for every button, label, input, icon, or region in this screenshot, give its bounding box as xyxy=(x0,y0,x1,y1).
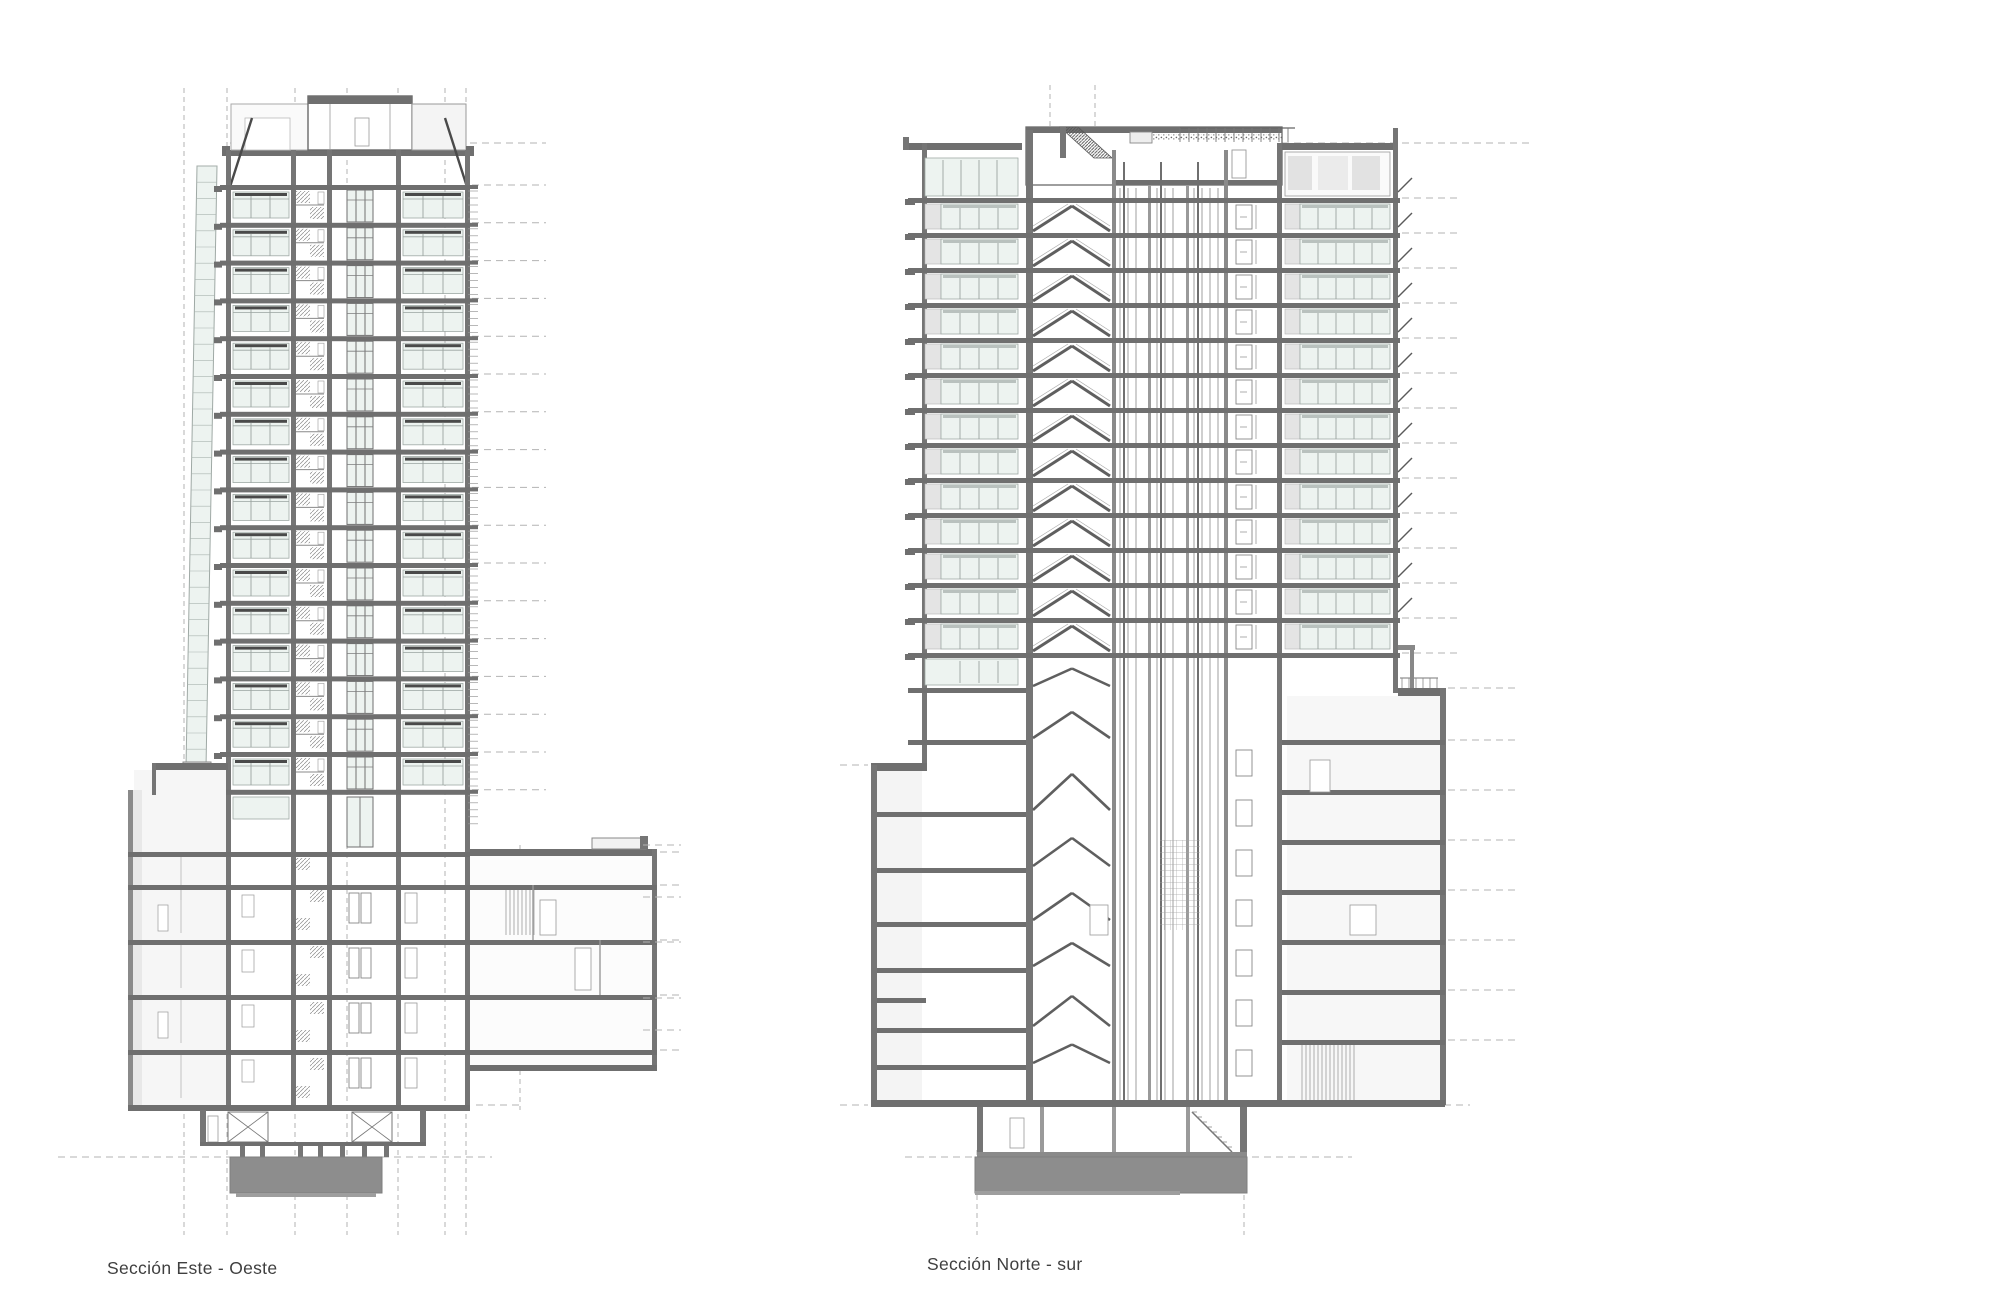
stair-flight xyxy=(1033,712,1072,738)
stair-flight xyxy=(1072,311,1110,336)
balcony-nib xyxy=(214,715,222,721)
pile-wall xyxy=(298,1146,303,1157)
stair-flight xyxy=(296,607,310,619)
davit-arm xyxy=(1398,178,1412,192)
stair-flight xyxy=(1072,416,1110,441)
fixture xyxy=(242,950,254,972)
window-door xyxy=(347,644,373,676)
window-door xyxy=(347,455,373,487)
balcony-nib xyxy=(214,224,222,230)
roof-gravel xyxy=(1136,134,1282,140)
stair-door xyxy=(318,457,324,469)
stair-tread xyxy=(1076,414,1110,436)
podium-slab xyxy=(128,885,228,890)
section-este-oeste xyxy=(58,88,684,1235)
stair-door xyxy=(318,683,324,695)
stair-flight xyxy=(296,1086,310,1098)
floor-slab xyxy=(908,583,1400,588)
canvas: Sección Este - Oeste Sección Norte - sur xyxy=(0,0,2000,1308)
stair-flight xyxy=(1072,241,1110,266)
pile-wall xyxy=(260,1146,265,1157)
stair-flight xyxy=(310,661,324,673)
podium-door xyxy=(349,1058,359,1088)
stair-flight xyxy=(296,342,310,354)
stair-flight xyxy=(310,585,324,597)
edge-nib xyxy=(468,374,478,378)
podium-slab xyxy=(1282,840,1445,845)
stair-tread xyxy=(1033,414,1068,436)
window-head xyxy=(235,193,287,196)
stair-tread xyxy=(1033,379,1068,401)
floor-slab xyxy=(220,525,470,530)
panel xyxy=(1288,156,1312,190)
facade-panel xyxy=(925,344,941,369)
window-shadow xyxy=(943,205,1016,208)
facade-panel xyxy=(1285,449,1300,474)
balcony-nib xyxy=(905,444,915,450)
stair-flight xyxy=(1072,591,1110,616)
window-shadow xyxy=(943,240,1016,243)
podium-wall xyxy=(152,763,156,795)
stair-tread xyxy=(1033,554,1068,576)
stair-flight xyxy=(310,890,324,902)
stair-door xyxy=(318,268,324,280)
roof-slab xyxy=(226,150,470,156)
window-head xyxy=(405,344,461,347)
window-head xyxy=(405,269,461,272)
davit-arm xyxy=(1398,318,1412,332)
stair-flight xyxy=(1033,669,1072,687)
stair-flight xyxy=(1072,521,1110,546)
window-head xyxy=(405,306,461,309)
stair-tread xyxy=(1076,274,1110,296)
balcony-nib xyxy=(905,304,915,310)
facade-panel xyxy=(1285,344,1300,369)
stair-door xyxy=(318,381,324,393)
davit-arm xyxy=(1398,528,1412,542)
stair-flight xyxy=(296,229,310,241)
floor-slab xyxy=(220,487,470,492)
balcony-nib xyxy=(214,753,222,759)
window-head xyxy=(405,684,461,687)
podium-slab xyxy=(908,1065,1026,1070)
podium-roof xyxy=(152,763,228,770)
podium-door xyxy=(361,1058,371,1088)
podium-facade-strip xyxy=(133,790,142,1105)
podium-slab xyxy=(908,740,1026,745)
stair-door xyxy=(318,721,324,733)
window-shadow xyxy=(1302,310,1388,313)
window-shadow xyxy=(1302,205,1388,208)
podium-interior xyxy=(1287,696,1440,1100)
stair-flight xyxy=(1072,626,1110,651)
stair-flight xyxy=(296,720,310,732)
facade-panel xyxy=(925,589,941,614)
floor-slab xyxy=(908,618,1400,623)
roof-box xyxy=(412,104,466,150)
section-label-norte-sur: Sección Norte - sur xyxy=(927,1254,1082,1275)
floor-slab xyxy=(908,198,1400,203)
stair-tread xyxy=(1076,554,1110,576)
pile-wall xyxy=(384,1146,389,1157)
floor-slab xyxy=(908,548,1400,553)
stair-flight xyxy=(1033,838,1072,866)
window-shadow xyxy=(943,380,1016,383)
podium-door xyxy=(361,893,371,923)
window-shadow xyxy=(1302,415,1388,418)
ground-slab xyxy=(128,1105,470,1111)
stair-tread xyxy=(1033,309,1068,331)
fixture xyxy=(242,1060,254,1082)
edge-nib xyxy=(468,261,478,265)
podium-door xyxy=(349,1003,359,1033)
facade-panel xyxy=(925,554,941,579)
wing-roof xyxy=(1282,143,1398,150)
balcony-nib xyxy=(214,186,222,192)
window-door xyxy=(347,568,373,600)
stair-flight xyxy=(296,493,310,505)
glass-screen xyxy=(186,166,217,768)
balcony-nib xyxy=(905,514,915,520)
edge-nib xyxy=(468,790,478,794)
parapet-nib xyxy=(903,137,909,150)
stair-flight xyxy=(310,434,324,446)
stair-door xyxy=(318,419,324,431)
stair-flight xyxy=(310,358,324,370)
foundation-ledge xyxy=(975,1191,1180,1195)
stair-flight xyxy=(1072,1045,1110,1064)
balcony-nib xyxy=(905,199,915,205)
stair-flight xyxy=(1072,943,1110,966)
section-label-este-oeste: Sección Este - Oeste xyxy=(107,1258,277,1279)
balcony-nib xyxy=(905,549,915,555)
stair-flight xyxy=(1072,276,1110,301)
window-head xyxy=(235,344,287,347)
stair-flight xyxy=(1033,591,1072,616)
window-door xyxy=(347,303,373,335)
floor-slab xyxy=(220,336,470,341)
stair-door xyxy=(318,570,324,582)
edge-nib xyxy=(468,714,478,718)
podium-slab xyxy=(908,653,1026,658)
stair-flight xyxy=(1033,626,1072,651)
panel xyxy=(1318,156,1348,190)
floor-slab xyxy=(220,601,470,606)
window-shadow xyxy=(943,345,1016,348)
stair-wall xyxy=(1026,130,1033,1105)
podium-slab xyxy=(1282,890,1445,895)
foundation xyxy=(230,1157,382,1193)
window-door xyxy=(347,530,373,562)
window-shadow xyxy=(943,555,1016,558)
floor-slab xyxy=(220,790,470,795)
podium-door xyxy=(1236,1050,1252,1076)
podium-door xyxy=(349,893,359,923)
fixture xyxy=(242,1005,254,1027)
stair-tread xyxy=(1076,624,1110,646)
stair-flight xyxy=(296,858,310,870)
window-head xyxy=(405,571,461,574)
stair-tread xyxy=(1076,484,1110,506)
stair-tread xyxy=(1076,309,1110,331)
stair-flight xyxy=(310,1002,324,1014)
podium-wall xyxy=(871,765,877,1105)
lobby-window xyxy=(233,797,289,819)
window-shadow xyxy=(1302,485,1388,488)
window-head xyxy=(235,647,287,650)
window-head xyxy=(405,760,461,763)
stair-flight xyxy=(1072,381,1110,406)
floor-slab xyxy=(220,676,470,681)
ground-slab xyxy=(871,1100,1445,1107)
annex-slab xyxy=(470,995,657,1000)
stair-flight xyxy=(1033,996,1072,1026)
podium-slab xyxy=(908,812,1026,817)
stair-flight xyxy=(310,509,324,521)
basement-slab xyxy=(977,1152,1247,1157)
floor-slab xyxy=(220,563,470,568)
window-door xyxy=(347,492,373,524)
foundation-ledge xyxy=(236,1193,376,1197)
podium-slab xyxy=(128,852,228,857)
facade-panel xyxy=(1285,204,1300,229)
stair-tread xyxy=(1033,484,1068,506)
podium-door xyxy=(405,948,417,978)
stair-flight xyxy=(1033,311,1072,336)
stair-flight xyxy=(296,758,310,770)
basement-wall xyxy=(977,1107,983,1157)
stair-flight xyxy=(310,547,324,559)
window-shadow xyxy=(1302,520,1388,523)
roof-curb xyxy=(1130,132,1152,143)
facade-panel xyxy=(925,449,941,474)
window-shadow xyxy=(1302,275,1388,278)
floor-slab xyxy=(220,298,470,303)
stair-flight xyxy=(296,1030,310,1042)
podium-slab xyxy=(908,868,1026,873)
stair-flight xyxy=(1033,774,1072,810)
section-norte-sur xyxy=(643,85,1530,1235)
podium-slab xyxy=(216,995,470,1000)
facade-panel xyxy=(1285,554,1300,579)
stair-flight xyxy=(310,320,324,332)
window-head xyxy=(405,533,461,536)
core-wall xyxy=(327,150,332,1105)
window-shadow xyxy=(943,520,1016,523)
edge-nib xyxy=(468,336,478,340)
balcony-nib xyxy=(214,451,222,457)
podium-slab xyxy=(908,688,1026,693)
edge-nib xyxy=(468,487,478,491)
facade-panel xyxy=(1285,624,1300,649)
window-head xyxy=(405,647,461,650)
stair-flight xyxy=(1072,451,1110,476)
balcony-nib xyxy=(905,234,915,240)
podium-door xyxy=(349,948,359,978)
podium-roof xyxy=(1398,688,1445,696)
podium-door xyxy=(1236,900,1252,926)
davit-arm xyxy=(1398,353,1412,367)
floor-slab xyxy=(220,261,470,266)
stair-tread xyxy=(1076,379,1110,401)
stair-flight xyxy=(296,304,310,316)
edge-nib xyxy=(468,752,478,756)
terrace-step-wall xyxy=(1410,645,1414,688)
podium-interior xyxy=(877,771,922,1105)
fixture xyxy=(1310,760,1330,792)
stair-flight xyxy=(1033,521,1072,546)
window-head xyxy=(405,231,461,234)
balcony-nib xyxy=(905,619,915,625)
floor-slab xyxy=(220,185,470,190)
facade-panel xyxy=(1285,484,1300,509)
stair-tread xyxy=(1033,624,1068,646)
podium-roof xyxy=(871,763,927,771)
window xyxy=(925,659,1018,685)
balcony-nib xyxy=(214,602,222,608)
floor-slab xyxy=(220,714,470,719)
stair-door xyxy=(318,532,324,544)
annex-door xyxy=(575,948,591,990)
edge-nib xyxy=(468,185,478,189)
stair-flight xyxy=(296,645,310,657)
window-shadow xyxy=(943,625,1016,628)
window-shadow xyxy=(943,275,1016,278)
stair-flight xyxy=(296,191,310,203)
balcony-nib xyxy=(214,677,222,683)
basement-door xyxy=(208,1116,218,1142)
window-shadow xyxy=(1302,450,1388,453)
podium-slab xyxy=(1282,790,1445,795)
machine-door xyxy=(1232,150,1246,178)
podium-door xyxy=(405,1003,417,1033)
fixture xyxy=(242,895,254,917)
stair-flight xyxy=(1072,206,1110,231)
podium-slab xyxy=(216,885,470,890)
annex-hatch xyxy=(505,890,535,935)
window-shadow xyxy=(943,310,1016,313)
facade-panel xyxy=(925,414,941,439)
annex-slab xyxy=(470,1065,657,1071)
stair-flight xyxy=(310,207,324,219)
window-head xyxy=(235,458,287,461)
balcony-nib xyxy=(214,640,222,646)
window-shadow xyxy=(943,590,1016,593)
stair-tread xyxy=(1033,274,1068,296)
window-head xyxy=(235,495,287,498)
floor-slab xyxy=(908,233,1400,238)
podium-slab xyxy=(216,940,470,945)
fixture xyxy=(158,905,168,931)
stair-flight xyxy=(1072,556,1110,581)
window-door xyxy=(347,606,373,638)
floor-slab xyxy=(220,450,470,455)
window xyxy=(925,158,1018,196)
window-shadow xyxy=(1302,240,1388,243)
facade-panel xyxy=(1285,274,1300,299)
window-head xyxy=(405,458,461,461)
podium-slab xyxy=(1282,990,1445,995)
stair-flight xyxy=(1033,486,1072,511)
stair-flight xyxy=(310,623,324,635)
stair-tread xyxy=(1033,519,1068,541)
podium-slab xyxy=(877,998,926,1003)
balcony-nib xyxy=(214,337,222,343)
podium-slab xyxy=(908,1028,1026,1033)
stair-flight xyxy=(1033,206,1072,231)
podium-door xyxy=(405,893,417,923)
stair-flight xyxy=(310,736,324,748)
stair-door xyxy=(318,230,324,242)
stair-flight xyxy=(310,774,324,786)
window-door xyxy=(347,719,373,751)
facade-panel xyxy=(925,519,941,544)
podium-door xyxy=(1236,800,1252,826)
window-door xyxy=(347,417,373,449)
roof-room-inner xyxy=(245,118,290,150)
balcony-nib xyxy=(214,413,222,419)
facade-panel xyxy=(1285,414,1300,439)
davit-arm xyxy=(1398,458,1412,472)
panel xyxy=(1352,156,1380,190)
balcony-nib xyxy=(214,526,222,532)
window-head xyxy=(405,495,461,498)
floor-slab xyxy=(908,408,1400,413)
floor-slab xyxy=(908,443,1400,448)
window-head xyxy=(405,420,461,423)
edge-nib xyxy=(468,412,478,416)
window-head xyxy=(405,193,461,196)
window-shadow xyxy=(1302,555,1388,558)
stair-door xyxy=(318,608,324,620)
facade-panel xyxy=(1285,309,1300,334)
podium-slab xyxy=(1282,740,1445,745)
stair-flight xyxy=(310,1058,324,1070)
stair-tread xyxy=(1033,589,1068,611)
floor-slab xyxy=(220,752,470,757)
stair-tread xyxy=(1033,344,1068,366)
podium-slab xyxy=(128,995,228,1000)
annex-slab xyxy=(470,885,657,890)
edge-nib xyxy=(468,223,478,227)
overrun-door xyxy=(355,118,369,146)
core-wall xyxy=(291,150,296,1105)
stair-flight xyxy=(310,283,324,295)
stair-flight xyxy=(1072,774,1110,810)
podium-door xyxy=(1236,750,1252,776)
annex-roof-box xyxy=(592,838,646,849)
annex-slab xyxy=(470,1050,657,1055)
facade-panel xyxy=(1285,519,1300,544)
annex-door xyxy=(540,900,556,935)
window-door xyxy=(347,228,373,260)
basement-pier xyxy=(1112,1107,1116,1155)
window-head xyxy=(405,722,461,725)
davit-arm xyxy=(1398,563,1412,577)
shaft-wall xyxy=(1148,185,1151,1105)
section-drawing-svg xyxy=(0,0,2000,1308)
balcony-nib xyxy=(214,564,222,570)
plant-hatch xyxy=(1160,840,1200,930)
stair-flight xyxy=(310,245,324,257)
davit-arm xyxy=(1398,213,1412,227)
balcony-nib xyxy=(905,584,915,590)
window-shadow xyxy=(1302,380,1388,383)
stair-flight xyxy=(1033,943,1072,966)
edge-nib xyxy=(468,563,478,567)
floor-slab xyxy=(220,374,470,379)
window-door xyxy=(347,681,373,713)
